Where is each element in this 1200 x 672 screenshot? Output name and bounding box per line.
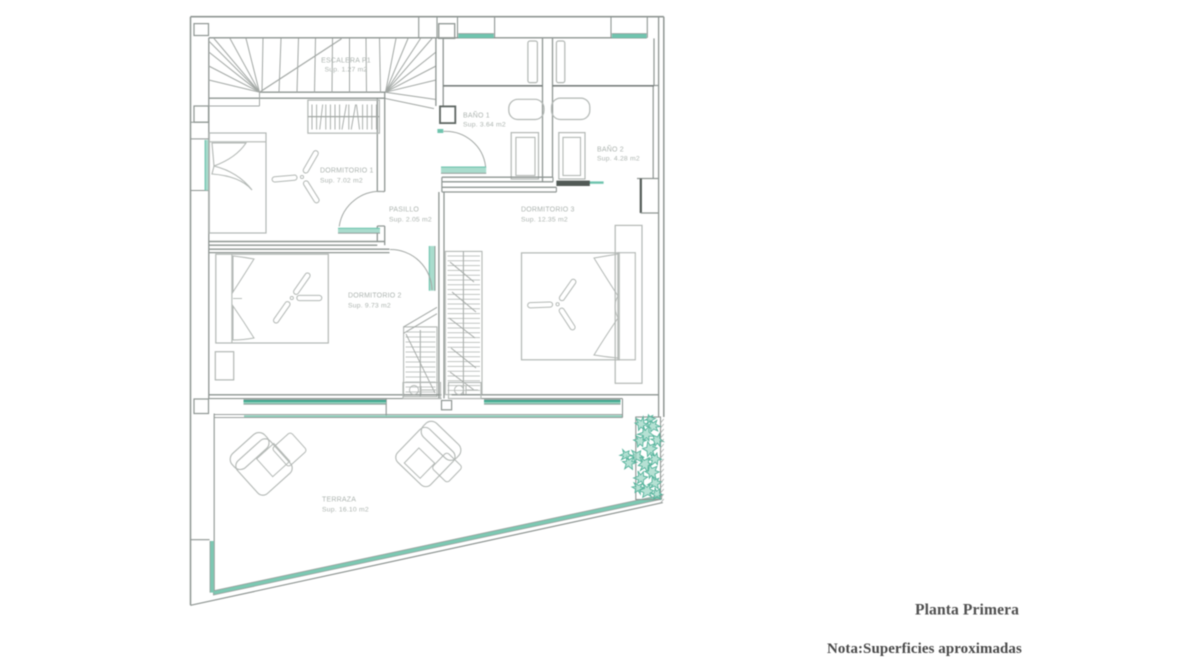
svg-text:BAÑO 2: BAÑO 2	[597, 145, 624, 154]
svg-text:Planta Primera: Planta Primera	[915, 602, 1019, 619]
svg-text:DORMITORIO 3: DORMITORIO 3	[521, 207, 575, 214]
svg-text:Sup. 12.35 m2: Sup. 12.35 m2	[521, 217, 568, 224]
svg-text:Sup. 9.73 m2: Sup. 9.73 m2	[348, 303, 391, 310]
svg-text:Sup. 1.27 m2: Sup. 1.27 m2	[325, 67, 368, 74]
svg-text:Sup. 4.28 m2: Sup. 4.28 m2	[597, 156, 640, 163]
svg-text:Sup. 16.10 m2: Sup. 16.10 m2	[322, 507, 369, 514]
svg-text:BAÑO 1: BAÑO 1	[463, 111, 490, 120]
svg-text:DORMITORIO 2: DORMITORIO 2	[348, 293, 402, 300]
svg-text:Sup. 2.05 m2: Sup. 2.05 m2	[389, 217, 432, 224]
svg-text:PASILLO: PASILLO	[389, 207, 419, 214]
svg-text:Nota:Superficies aproximadas: Nota:Superficies aproximadas	[827, 641, 1022, 657]
svg-text:ESCALERA P1: ESCALERA P1	[321, 58, 371, 65]
svg-text:DORMITORIO 1: DORMITORIO 1	[320, 168, 374, 175]
svg-text:Sup. 3.64 m2: Sup. 3.64 m2	[463, 122, 506, 129]
svg-text:TERRAZA: TERRAZA	[322, 497, 356, 504]
svg-text:Sup. 7.02 m2: Sup. 7.02 m2	[320, 178, 363, 185]
